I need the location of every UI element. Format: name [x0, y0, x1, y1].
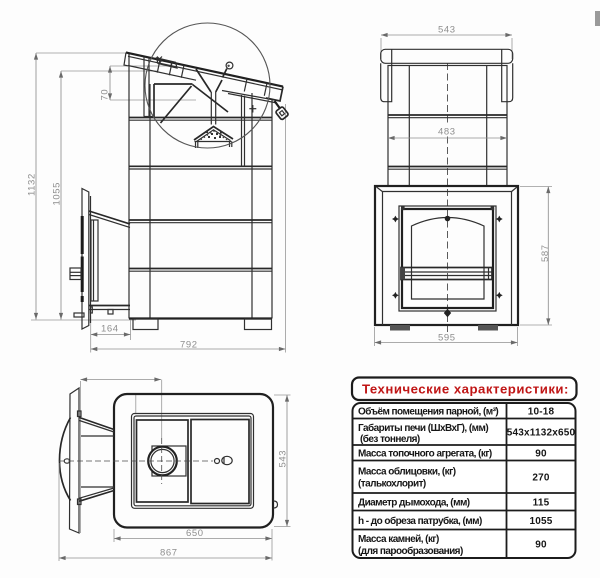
svg-text:792: 792	[180, 340, 198, 351]
svg-text:Технические характеристики:: Технические характеристики:	[362, 382, 569, 397]
svg-text:650: 650	[186, 528, 204, 539]
svg-text:270: 270	[532, 473, 550, 484]
svg-text:90: 90	[535, 540, 547, 551]
svg-text:543: 543	[278, 450, 289, 468]
svg-text:483: 483	[438, 127, 456, 138]
svg-text:90: 90	[535, 449, 547, 460]
svg-text:Габариты печи (ШхВхГ), (мм): Габариты печи (ШхВхГ), (мм)	[358, 422, 488, 434]
svg-text:10-18: 10-18	[528, 407, 555, 418]
svg-text:(для парообразования): (для парообразования)	[358, 545, 463, 557]
svg-text:867: 867	[160, 548, 178, 559]
svg-text:543х1132х650: 543х1132х650	[507, 428, 576, 439]
svg-text:164: 164	[101, 324, 119, 335]
svg-text:h - до обреза патрубка, (мм): h - до обреза патрубка, (мм)	[358, 515, 482, 527]
svg-text:1055: 1055	[52, 182, 63, 206]
svg-text:Диаметр дымохода, (мм): Диаметр дымохода, (мм)	[358, 498, 470, 509]
svg-text:(талькохлорит): (талькохлорит)	[358, 479, 426, 490]
svg-text:Объём помещения парной, (м³): Объём помещения парной, (м³)	[358, 406, 498, 418]
svg-text:Масса камней, (кг): Масса камней, (кг)	[358, 534, 439, 545]
svg-text:543: 543	[438, 25, 456, 36]
svg-text:1055: 1055	[529, 516, 552, 527]
svg-text:587: 587	[540, 244, 551, 262]
svg-text:(без тоннеля): (без тоннеля)	[360, 433, 420, 445]
svg-text:595: 595	[438, 333, 456, 344]
svg-text:70: 70	[100, 89, 111, 101]
svg-text:1132: 1132	[27, 173, 38, 196]
svg-text:Масса топочного агрегата, (кг): Масса топочного агрегата, (кг)	[358, 449, 492, 460]
svg-text:Масса облицовки, (кг): Масса облицовки, (кг)	[358, 466, 456, 478]
svg-text:115: 115	[533, 498, 550, 509]
